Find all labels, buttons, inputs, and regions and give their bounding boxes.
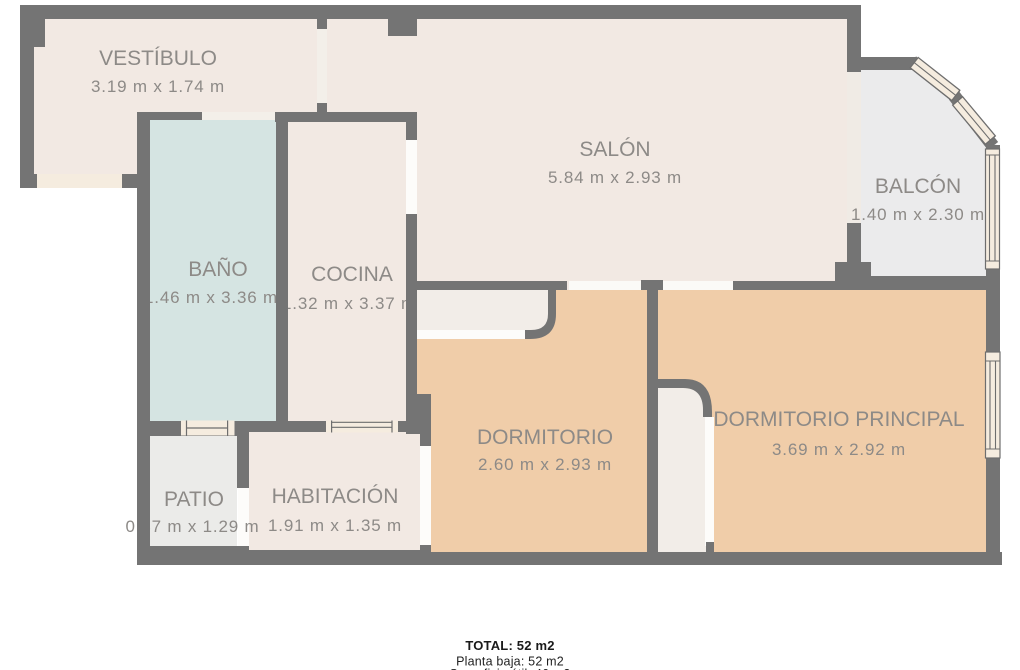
- svg-text:VESTÍBULO: VESTÍBULO: [99, 47, 217, 70]
- svg-text:BALCÓN: BALCÓN: [875, 175, 961, 198]
- svg-text:BAÑO: BAÑO: [188, 257, 248, 281]
- svg-text:5.84 m x 2.93 m: 5.84 m x 2.93 m: [548, 168, 682, 187]
- svg-text:1.32 m x 3.37 m: 1.32 m x 3.37 m: [282, 294, 416, 313]
- svg-text:1.46 m x 3.36 m: 1.46 m x 3.36 m: [144, 288, 278, 307]
- svg-text:TOTAL: 52 m2: TOTAL: 52 m2: [465, 638, 554, 653]
- svg-text:3.19 m x 1.74 m: 3.19 m x 1.74 m: [91, 77, 225, 96]
- svg-text:1.91 m x 1.35 m: 1.91 m x 1.35 m: [268, 516, 402, 535]
- svg-text:COCINA: COCINA: [311, 263, 393, 286]
- svg-text:3.69 m x 2.92 m: 3.69 m x 2.92 m: [772, 440, 906, 459]
- svg-text:SALÓN: SALÓN: [579, 138, 650, 161]
- svg-text:2.60 m x 2.93 m: 2.60 m x 2.93 m: [478, 455, 612, 474]
- svg-text:1.40 m x 2.30 m: 1.40 m x 2.30 m: [851, 205, 985, 224]
- svg-text:DORMITORIO PRINCIPAL: DORMITORIO PRINCIPAL: [713, 408, 964, 431]
- svg-text:HABITACIÓN: HABITACIÓN: [272, 485, 399, 508]
- svg-text:DORMITORIO: DORMITORIO: [477, 426, 613, 449]
- svg-text:PATIO: PATIO: [164, 488, 224, 511]
